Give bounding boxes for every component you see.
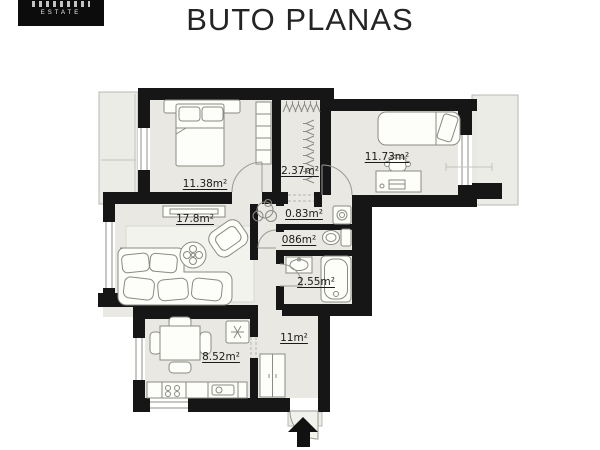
floor-plan-drawing [0,0,600,450]
hallway-cabinet [260,354,285,397]
kitchen-area-label: 8.52m² [202,351,240,363]
niche-area-label: 0.83m² [285,208,323,220]
living-window [103,222,115,288]
living-area-label: 17.8m² [176,213,214,225]
bathroom-sink [286,257,312,273]
bedroom1-wardrobe [256,102,271,164]
floor-plan-page: ESTATE BUTO PLANAS [0,0,600,450]
bathroom-area-label: 2.55m² [297,276,335,288]
bedroom1-window [138,128,150,170]
entrance-opening [290,398,318,412]
coffee-table [180,242,206,268]
left-balcony [99,92,138,204]
closet-area-label: 2.37m² [281,165,319,177]
bedroom2-area-label: 11.73m² [365,151,410,163]
washing-machine [333,206,351,224]
hallway-area-label: 11m² [280,332,308,344]
kitchen-counter [147,382,247,398]
bedroom2-window [458,135,472,185]
bedroom1-area-label: 11.38m² [183,178,228,190]
fridge [226,321,249,343]
kitchen-window [133,338,145,380]
single-bed [378,112,460,145]
wc-area-label: 086m² [282,234,316,246]
desk [376,171,421,192]
kitchen-bottom-window [150,398,188,412]
